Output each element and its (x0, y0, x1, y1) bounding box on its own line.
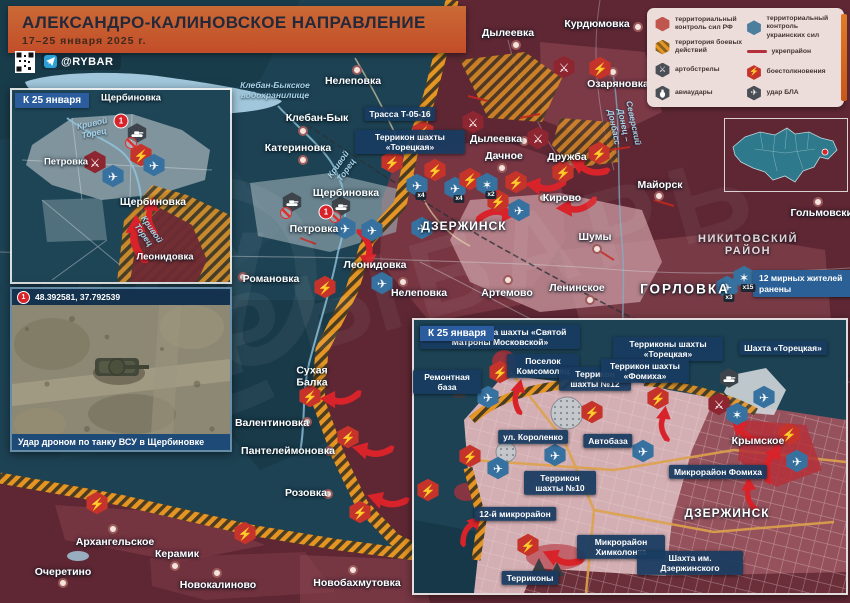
settlement-dot (503, 275, 513, 285)
settlement-dot (398, 277, 408, 287)
map-label: Сухая Балка (281, 365, 343, 388)
settlement-dot (58, 578, 68, 588)
site-label: Микрорайон Фомиха (669, 465, 767, 479)
district-label-nikitovsky: НИКИТОВСКИЙ РАЙОН (688, 233, 808, 257)
map-label: Крымское (732, 435, 785, 447)
map-label: Кирово (543, 192, 581, 204)
settlement-dot (212, 568, 222, 578)
qr-code (15, 51, 35, 73)
drone-photo (12, 289, 230, 450)
multiplier-badge: х3 (723, 294, 734, 302)
page-title: АЛЕКСАНДРО-КАЛИНОВСКОЕ НАПРАВЛЕНИЕ (22, 13, 452, 33)
map-label: Дылеевка (482, 27, 534, 39)
reservoir-label: Клебан-Быкское водохранилище (220, 80, 330, 100)
map-label: Озаряновка (587, 78, 649, 90)
map-label: Щербиновка (120, 196, 186, 208)
site-label: Ремонтная база (413, 370, 481, 394)
casualty-badge: 12 мирных жителей ранены (753, 270, 850, 297)
map-label: Дачное (485, 150, 523, 162)
settlement-dot (348, 565, 358, 575)
telegram-icon (44, 55, 57, 68)
legend-item-fortified: укрепрайон (747, 43, 839, 61)
map-label: Щербиновка (313, 187, 379, 199)
destroyed-mark-icon (125, 137, 137, 149)
site-label: Автобаза (583, 434, 632, 448)
uav-icon: ✈ (747, 86, 762, 101)
map-label: Новобахмутовка (313, 577, 400, 589)
map-label: Петровка (44, 157, 88, 168)
inset-photo: 1 48.392581, 37.792539 Удар дроном по та… (10, 287, 232, 452)
legend-item-airstrikes: авиаудары (655, 84, 747, 102)
map-label: Гольмовский (791, 207, 850, 219)
city-label-dzerzhinsk-inset: ДЗЕРЖИНСК (684, 506, 769, 520)
map-label: Петровка (290, 223, 339, 235)
map-label: Керамик (155, 548, 199, 560)
legend-item-shelling: ⚔ артобстрелы (655, 61, 747, 79)
ua-control-icon (747, 20, 762, 35)
map-label: Новокалиново (180, 579, 256, 591)
multiplier-badge: х15 (741, 284, 756, 292)
multiplier-badge: х4 (453, 195, 464, 203)
map-infographic: @ РЫБАРЬ АЛЕКСАНДРО-КАЛИНОВСКОЕ НАПРАВЛЕ… (0, 0, 850, 603)
site-label: Терриконы шахты «Торецкая» (613, 337, 723, 361)
settlement-dot (654, 191, 664, 201)
settlement-dot (585, 295, 595, 305)
date-range: 17–25 января 2025 г. (22, 35, 452, 47)
channel-name: @RYBAR (61, 56, 113, 68)
inset-title: К 25 января (15, 93, 89, 108)
photo-marker: 1 (17, 291, 30, 304)
settlement-dot (298, 155, 308, 165)
photo-marker: 1 (319, 205, 334, 220)
settlement-dot (298, 126, 308, 136)
coordinates: 48.392581, 37.792539 (35, 292, 120, 302)
map-label: Артемово (481, 287, 532, 299)
map-label: Нелеповка (325, 75, 381, 87)
fortified-line-icon (747, 50, 767, 53)
map-label: Пантелеймоновка (241, 445, 335, 457)
multiplier-badge: х2 (485, 191, 496, 199)
site-label: Террикон шахты №10 (524, 471, 596, 495)
map-label: Шумы (579, 231, 612, 243)
road-label: Трасса Т-05-16 (364, 107, 435, 121)
mine-label: Террикон шахты «Торецкая» (355, 130, 465, 154)
map-label: Леонидовка (343, 259, 406, 271)
settlement-dot (511, 40, 521, 50)
photo-coordinates-bar: 1 48.392581, 37.792539 (12, 289, 230, 305)
legend-item-rf-control: территориальный контроль сил РФ (655, 15, 747, 33)
combat-zone-icon (655, 40, 670, 55)
map-label: Архангельское (76, 536, 154, 548)
multiplier-badge: х4 (415, 192, 426, 200)
settlement-dot (497, 163, 507, 173)
site-label: Терриконы (502, 571, 559, 585)
rf-control-icon (655, 17, 670, 32)
map-label: Нелеповка (391, 287, 447, 299)
settlement-dot (170, 561, 180, 571)
map-label: Майорск (637, 179, 682, 191)
legend-item-combat-zone: территория боевых действий (655, 38, 747, 56)
title-banner: АЛЕКСАНДРО-КАЛИНОВСКОЕ НАПРАВЛЕНИЕ 17–25… (8, 6, 466, 53)
legend-item-uav: ✈ удар БЛА (747, 84, 839, 102)
city-label-dzerzhinsk: ДЗЕРЖИНСК (421, 219, 506, 233)
destroyed-mark-icon (280, 207, 292, 219)
site-label: Шахта им. Дзержинского (637, 551, 743, 575)
map-label: Дылеевка (470, 133, 522, 145)
artillery-icon: ⚔ (655, 63, 670, 78)
map-label: Катериновка (265, 142, 332, 154)
site-label: ул. Короленко (498, 430, 568, 444)
map-label: Щербиновка (101, 93, 161, 104)
legend: территориальный контроль сил РФ территор… (647, 8, 844, 107)
map-label: Романовка (243, 273, 300, 285)
settlement-dot (592, 244, 602, 254)
map-label: Очеретино (35, 566, 92, 578)
map-label: Ленинское (549, 282, 605, 294)
map-label: Дружба (547, 151, 587, 163)
legend-item-clashes: ⚡ боестолкновения (747, 63, 839, 81)
photo-caption: Удар дроном по танку ВСУ в Щербиновке (12, 434, 230, 450)
map-label: Леонидовка (136, 252, 193, 263)
airstrike-icon (655, 86, 670, 101)
photo-marker: 1 (114, 114, 129, 129)
inset-title: К 25 января (420, 326, 494, 341)
settlement-dot (813, 197, 823, 207)
rybar-badge: @RYBAR (41, 53, 121, 70)
map-label: Клебан-Бык (286, 112, 349, 124)
map-label: Розовка (285, 487, 327, 499)
site-label: 12-й микрорайон (474, 507, 556, 521)
settlement-dot (108, 524, 118, 534)
map-label: Валентиновка (235, 417, 309, 429)
legend-item-ua-control: территориальный контроль украинских сил (747, 15, 839, 40)
settlement-dot (633, 22, 643, 32)
site-label: Шахта «Торецкая» (739, 341, 827, 355)
clash-icon: ⚡ (747, 65, 762, 80)
map-label: Курдюмовка (564, 18, 629, 30)
city-label-gorlovka: ГОРЛОВКА (640, 282, 730, 297)
location-dot (822, 149, 828, 155)
ukraine-minimap (724, 118, 848, 192)
site-label: Террикон шахты «Фомиха» (601, 359, 689, 383)
settlement-dot (352, 65, 362, 75)
